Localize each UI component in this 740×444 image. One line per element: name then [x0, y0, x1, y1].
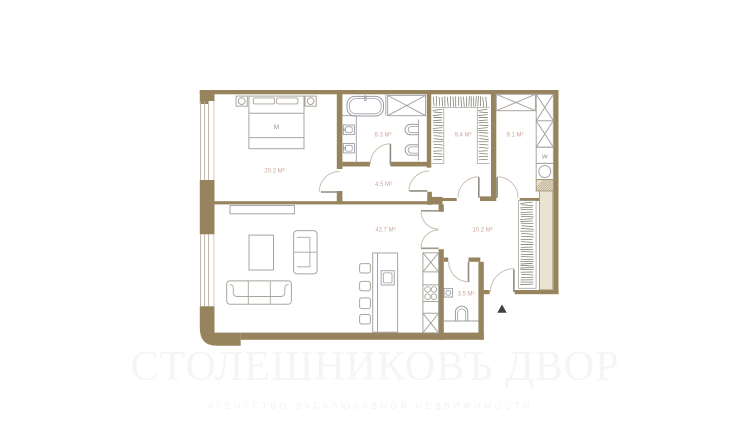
svg-text:20.2 М²: 20.2 М²: [264, 168, 284, 174]
svg-text:42.7 М²: 42.7 М²: [375, 227, 395, 233]
svg-text:9.4 М²: 9.4 М²: [454, 132, 471, 138]
svg-text:М: М: [274, 124, 279, 131]
svg-text:3.5 М²: 3.5 М²: [457, 292, 474, 298]
svg-text:9.1 М²: 9.1 М²: [506, 132, 523, 138]
svg-text:СТОЛЕШНИКОВЪ ДВОР: СТОЛЕШНИКОВЪ ДВОР: [130, 344, 619, 390]
svg-text:W: W: [542, 154, 548, 160]
svg-text:10.2 М²: 10.2 М²: [472, 227, 492, 233]
svg-text:8.3 М²: 8.3 М²: [374, 132, 391, 138]
svg-text:4.5 М²: 4.5 М²: [375, 182, 392, 188]
svg-text:АГЕНТСТВО ЭКСКЛЮЗИВНОЙ НЕДВИЖИ: АГЕНТСТВО ЭКСКЛЮЗИВНОЙ НЕДВИЖИМОСТИ: [207, 400, 532, 411]
